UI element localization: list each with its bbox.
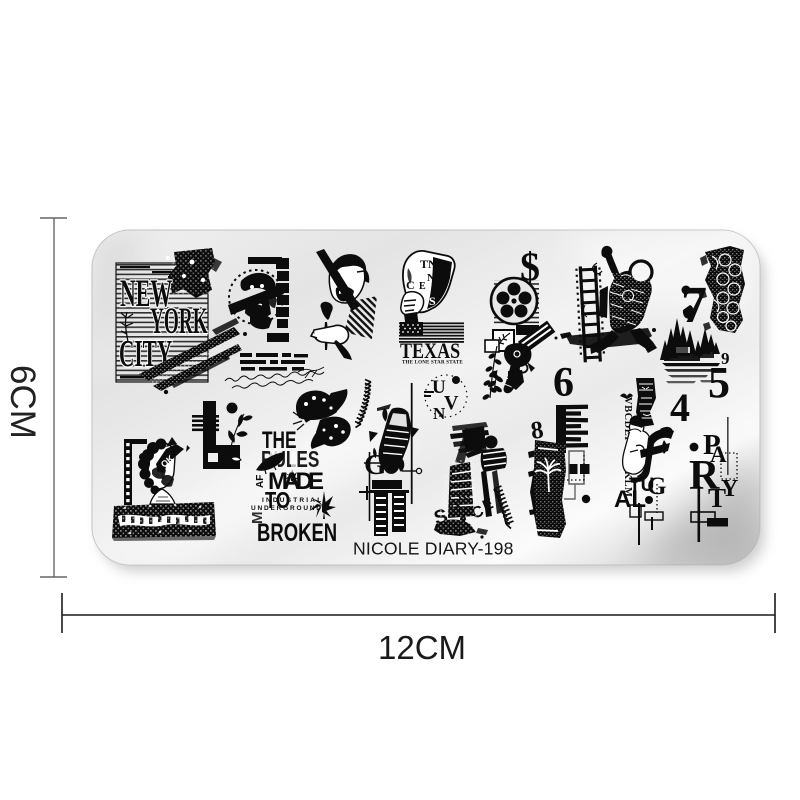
svg-text:12CM: 12CM [378, 629, 466, 666]
svg-text:G: G [364, 449, 387, 481]
svg-text:N: N [433, 404, 446, 423]
svg-text:G: G [647, 473, 666, 500]
svg-text:NICOLE DIARY-198: NICOLE DIARY-198 [353, 539, 514, 559]
svg-text:4: 4 [670, 385, 690, 430]
svg-text:INDUSTRIAL: INDUSTRIAL [262, 497, 323, 504]
svg-text:6CM: 6CM [3, 365, 42, 439]
svg-text:N: N [427, 272, 435, 284]
svg-text:S: S [429, 294, 436, 308]
svg-text:BROKEN: BROKEN [257, 518, 337, 546]
svg-text:THE LONE STAR STATE: THE LONE STAR STATE [402, 361, 463, 366]
svg-text:6: 6 [553, 360, 574, 406]
svg-text:C: C [406, 278, 415, 292]
svg-text:5: 5 [708, 358, 730, 407]
svg-text:V: V [444, 392, 459, 414]
svg-text:E: E [419, 281, 426, 292]
svg-text:Y: Y [721, 476, 738, 502]
svg-text:AF: AF [255, 475, 266, 488]
svg-text:7: 7 [681, 277, 707, 334]
svg-text:TN: TN [420, 257, 437, 271]
